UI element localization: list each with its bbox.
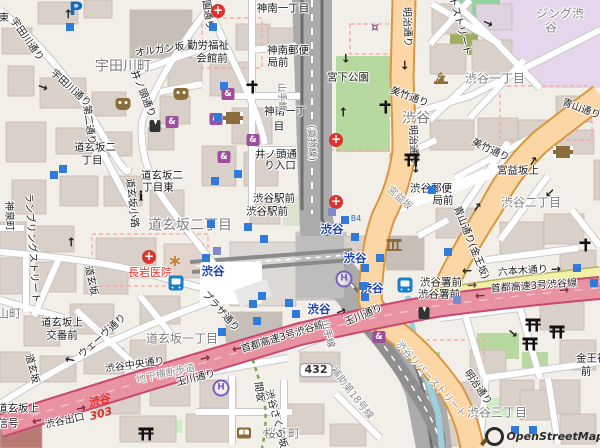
- osm-attribution-text: OpenStreetMap: [506, 430, 600, 443]
- map-canvas[interactable]: 宇田川町道玄坂二丁目道玄坂一丁目渋谷渋谷一丁目渋谷二丁目渋谷三丁目桜丘町円山町ジ…: [0, 0, 600, 448]
- osm-attribution: OpenStreetMap: [485, 427, 600, 446]
- osm-magnifier-icon: [485, 427, 504, 446]
- map-base-tiles: [0, 0, 600, 448]
